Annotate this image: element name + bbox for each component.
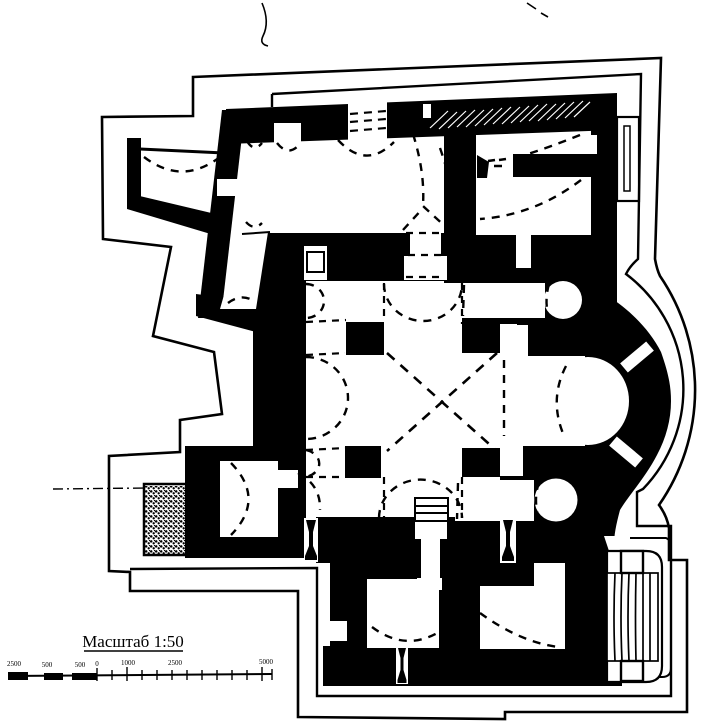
svg-text:500: 500 xyxy=(75,661,86,669)
svg-text:5000: 5000 xyxy=(259,658,274,666)
svg-text:2500: 2500 xyxy=(168,659,183,667)
svg-text:500: 500 xyxy=(42,661,53,669)
svg-text:Масштаб 1:50: Масштаб 1:50 xyxy=(82,632,184,651)
svg-text:0: 0 xyxy=(95,660,99,668)
svg-text:1000: 1000 xyxy=(121,659,136,667)
svg-text:2500: 2500 xyxy=(7,660,22,668)
